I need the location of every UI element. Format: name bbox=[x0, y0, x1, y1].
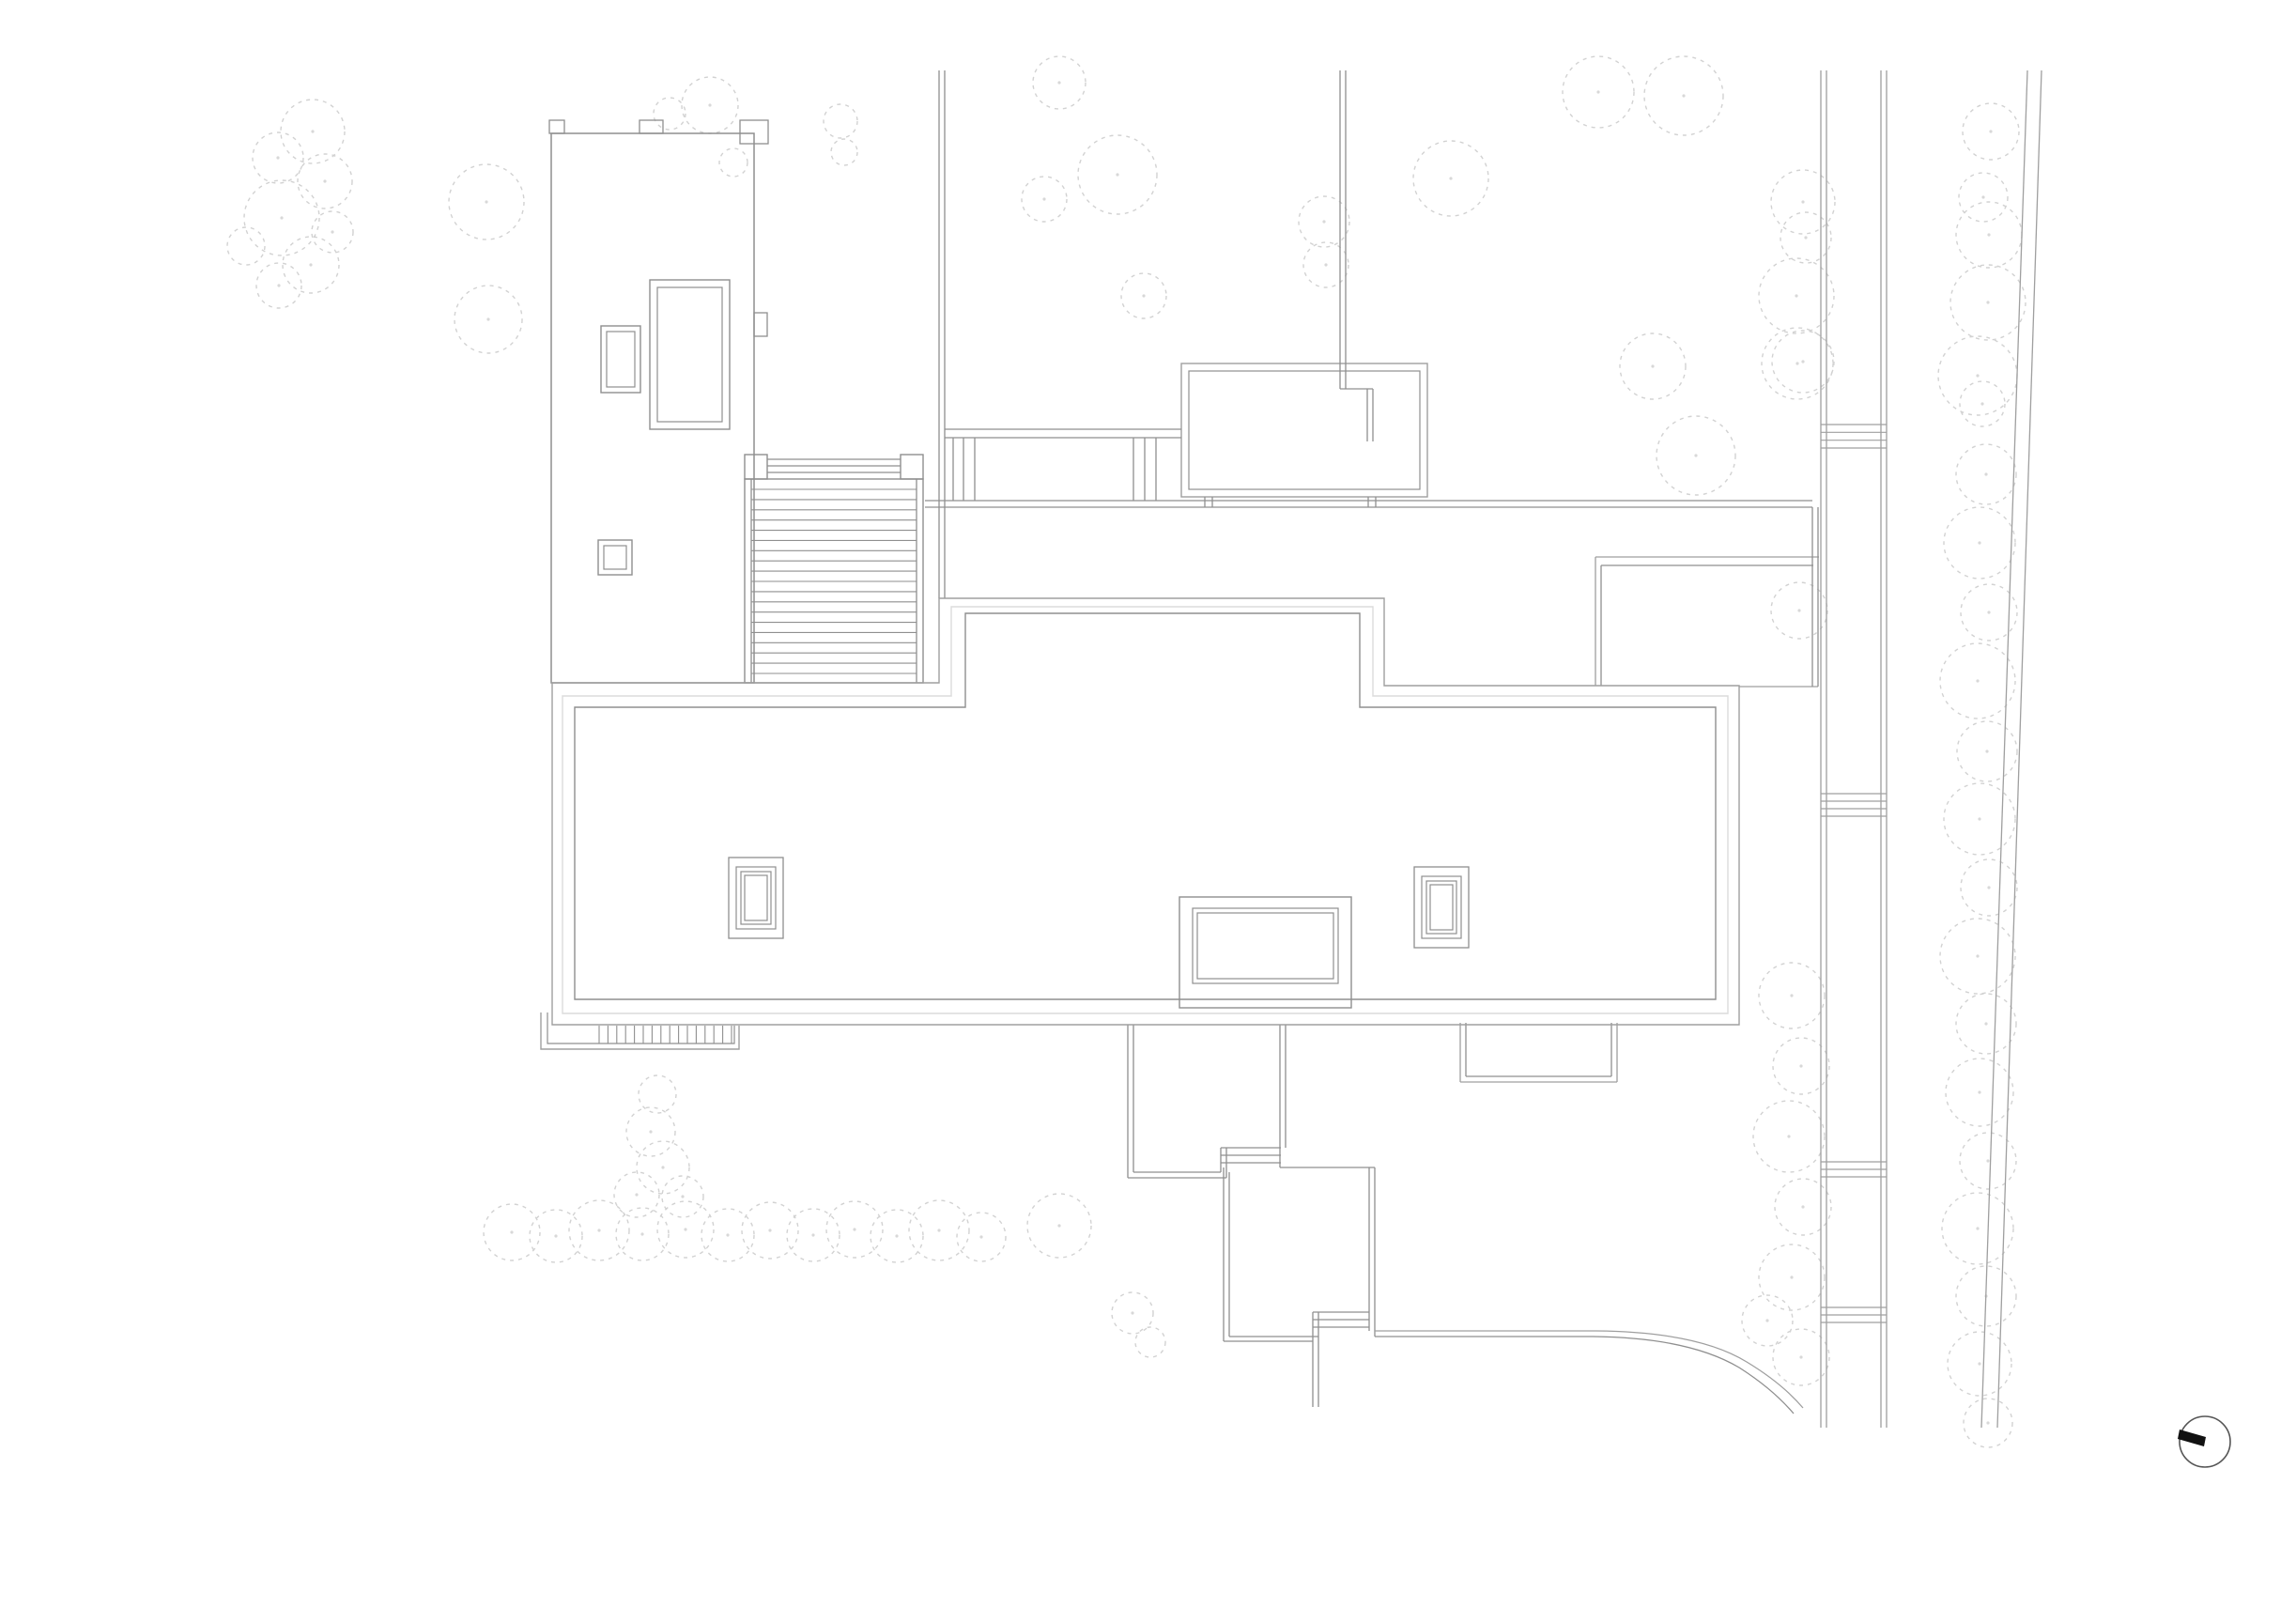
roof-hatch-a-outer bbox=[650, 280, 730, 429]
tree-center-dot bbox=[510, 1230, 513, 1233]
tree-center-dot bbox=[1682, 94, 1685, 97]
bulkhead-mid bbox=[1193, 908, 1338, 983]
tree-center-dot bbox=[1987, 233, 1990, 236]
tree-symbol bbox=[654, 98, 686, 130]
tree-center-dot bbox=[276, 156, 279, 159]
tree-center-dot bbox=[597, 1229, 600, 1231]
tree-center-dot bbox=[1984, 1022, 1987, 1025]
skylight-east-2 bbox=[1422, 876, 1461, 938]
roof-hatch-b-inner bbox=[607, 332, 635, 387]
tower-tab bbox=[549, 120, 564, 133]
tree-center-dot bbox=[1801, 200, 1804, 203]
roof-hatch-a-inner bbox=[657, 287, 722, 422]
stair-post-right bbox=[901, 455, 923, 479]
tree-center-dot bbox=[1989, 130, 1992, 132]
tree-symbol bbox=[824, 104, 857, 138]
tree-center-dot bbox=[1795, 294, 1797, 297]
tree-center-dot bbox=[1787, 1135, 1790, 1137]
tree-center-dot bbox=[726, 1233, 729, 1236]
tree-center-dot bbox=[1976, 679, 1979, 682]
tree-center-dot bbox=[1042, 197, 1045, 200]
main-roof-outer bbox=[552, 598, 1739, 1025]
tree-center-dot bbox=[1765, 1319, 1768, 1322]
tree-center-dot bbox=[1976, 1227, 1979, 1229]
tree-center-dot bbox=[1976, 374, 1979, 377]
skylight-east-1 bbox=[1414, 867, 1469, 948]
tree-center-dot bbox=[1987, 886, 1990, 889]
tree-center-dot bbox=[649, 1130, 652, 1133]
tree-symbol bbox=[831, 139, 857, 165]
tree-center-dot bbox=[640, 1232, 643, 1235]
tree-center-dot bbox=[1984, 472, 1987, 475]
tower-outline bbox=[551, 133, 754, 683]
skylight-west-3 bbox=[741, 872, 771, 924]
tree-center-dot bbox=[1790, 1275, 1793, 1278]
tree-center-dot bbox=[1651, 364, 1654, 367]
tree-center-dot bbox=[1131, 1311, 1133, 1314]
tree-symbol bbox=[1135, 1327, 1165, 1357]
drive-curve-inner bbox=[1375, 1337, 1794, 1414]
tree-center-dot bbox=[309, 263, 312, 266]
tree-center-dot bbox=[1596, 90, 1599, 93]
bulkhead-outer bbox=[1179, 897, 1351, 1008]
site-plan-page bbox=[0, 0, 2296, 1623]
tree-center-dot bbox=[1801, 1205, 1804, 1208]
tree-center-dot bbox=[554, 1234, 557, 1237]
tree-center-dot bbox=[768, 1229, 771, 1231]
upper-roof-inner bbox=[1189, 371, 1420, 489]
tree-symbol bbox=[719, 148, 747, 177]
tree-symbol bbox=[639, 1075, 676, 1113]
tree-center-dot bbox=[661, 1166, 664, 1168]
tree-center-dot bbox=[486, 317, 489, 320]
tree-center-dot bbox=[708, 103, 711, 106]
tree-center-dot bbox=[1799, 1064, 1802, 1067]
stair-post-left bbox=[745, 455, 767, 479]
tree-center-dot bbox=[1976, 954, 1979, 957]
tree-center-dot bbox=[1799, 1355, 1802, 1358]
skylight-east-3 bbox=[1426, 881, 1456, 934]
tree-center-dot bbox=[1981, 195, 1984, 198]
tree-center-dot bbox=[811, 1233, 814, 1236]
tree-center-dot bbox=[1986, 1421, 1989, 1424]
tower-tab bbox=[754, 313, 767, 336]
tree-center-dot bbox=[1804, 236, 1807, 239]
tree-center-dot bbox=[1057, 1224, 1060, 1227]
tree-center-dot bbox=[1795, 362, 1798, 364]
tree-center-dot bbox=[853, 1228, 855, 1230]
skylight-west-4 bbox=[745, 875, 767, 920]
tree-center-dot bbox=[1985, 750, 1988, 752]
tree-center-dot bbox=[1978, 1090, 1980, 1093]
tree-center-dot bbox=[1801, 360, 1804, 363]
tree-center-dot bbox=[1987, 611, 1990, 613]
tree-center-dot bbox=[895, 1234, 898, 1237]
drive-curve-outer bbox=[1375, 1331, 1803, 1408]
balcony-inner bbox=[547, 1012, 734, 1043]
site-plan-drawing bbox=[0, 0, 2296, 1623]
tree-center-dot bbox=[277, 284, 280, 286]
tree-center-dot bbox=[331, 230, 333, 233]
tree-center-dot bbox=[1986, 1159, 1989, 1162]
tree-center-dot bbox=[1324, 263, 1327, 266]
tree-center-dot bbox=[937, 1229, 940, 1231]
tree-center-dot bbox=[1797, 609, 1800, 611]
skylight-west-1 bbox=[729, 858, 783, 938]
skylight-west-2 bbox=[736, 867, 776, 929]
tree-center-dot bbox=[1978, 1362, 1980, 1365]
tree-center-dot bbox=[323, 179, 326, 182]
tree-center-dot bbox=[1980, 402, 1983, 405]
tree-center-dot bbox=[311, 130, 314, 132]
tree-center-dot bbox=[1986, 301, 1989, 303]
main-roof-middle bbox=[562, 607, 1728, 1013]
roof-vent-inner bbox=[604, 546, 626, 569]
tree-center-dot bbox=[635, 1193, 638, 1196]
tree-center-dot bbox=[280, 216, 283, 219]
tree-center-dot bbox=[1057, 81, 1060, 84]
main-roof-inner bbox=[575, 613, 1716, 999]
tree-center-dot bbox=[684, 1228, 686, 1230]
tree-center-dot bbox=[485, 200, 487, 203]
tree-center-dot bbox=[681, 1195, 684, 1198]
upper-roof-outer bbox=[1181, 363, 1427, 497]
tree-center-dot bbox=[1449, 177, 1452, 179]
tree-center-dot bbox=[1322, 220, 1325, 223]
tree-center-dot bbox=[1978, 817, 1980, 820]
tree-center-dot bbox=[1978, 541, 1980, 544]
tree-symbol bbox=[227, 227, 265, 265]
tree-center-dot bbox=[979, 1235, 982, 1238]
tree-center-dot bbox=[1142, 294, 1145, 297]
bulkhead-inner bbox=[1197, 913, 1333, 979]
tree-center-dot bbox=[1790, 994, 1793, 997]
tree-center-dot bbox=[1116, 173, 1118, 176]
skylight-east-4 bbox=[1430, 885, 1453, 930]
tree-center-dot bbox=[1694, 454, 1697, 456]
